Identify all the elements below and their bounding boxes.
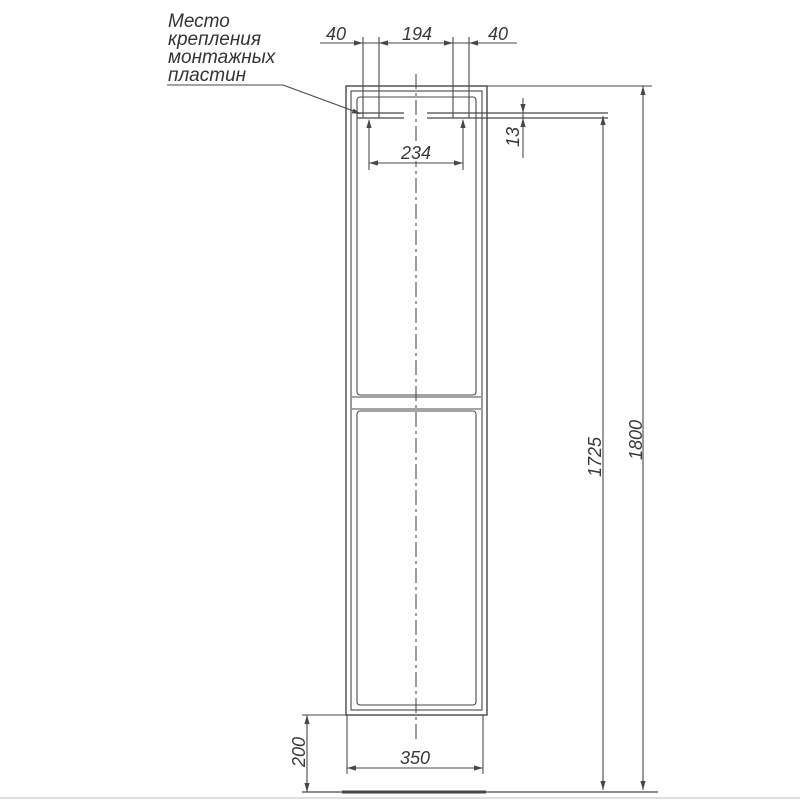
dim-194: 194: [402, 24, 432, 44]
arrowhead: [454, 160, 463, 165]
dim-40-left: 40: [326, 24, 346, 44]
arrowhead-down: [600, 781, 605, 790]
arrowhead-down: [304, 783, 309, 792]
dimension-1800: 1800: [626, 86, 646, 790]
arrowhead: [369, 160, 378, 165]
arrowhead-up: [520, 118, 525, 127]
arrowhead: [379, 40, 388, 45]
dim-13: 13: [503, 127, 523, 147]
arrowhead-up: [600, 116, 605, 125]
arrowhead-up: [460, 119, 465, 128]
arrowhead-up: [366, 119, 371, 128]
dim-200: 200: [289, 737, 309, 768]
leader-line: [283, 85, 359, 113]
arrowhead: [347, 765, 356, 770]
arrowhead-up: [304, 715, 309, 724]
arrowhead-down: [640, 781, 645, 790]
dim-1725: 1725: [585, 436, 605, 477]
arrowhead-up: [640, 86, 645, 95]
upper-door-panel: [357, 97, 476, 395]
arrowhead: [474, 765, 483, 770]
dim-350: 350: [400, 748, 430, 768]
cabinet-outline: [346, 74, 608, 742]
dimension-top-chain: 40 194 40: [320, 24, 517, 46]
dim-1800: 1800: [626, 420, 646, 460]
arrowhead-down: [520, 104, 525, 113]
dimension-13: 13: [503, 98, 526, 158]
arrowhead: [469, 40, 478, 45]
dimension-350: 350: [347, 715, 483, 774]
arrowhead: [444, 40, 453, 45]
leader-arrowhead: [352, 109, 361, 114]
technical-drawing-page: 40 194 40 234 13 1725 1800: [0, 0, 800, 800]
cabinet-dimension-drawing: 40 194 40 234 13 1725 1800: [0, 0, 800, 800]
dimension-1725: 1725: [585, 116, 606, 790]
dim-40-right: 40: [488, 24, 508, 44]
dimension-200: 200: [289, 715, 310, 792]
dim-234: 234: [400, 143, 431, 163]
arrowhead: [354, 40, 363, 45]
note-line-4: пластин: [168, 65, 247, 86]
